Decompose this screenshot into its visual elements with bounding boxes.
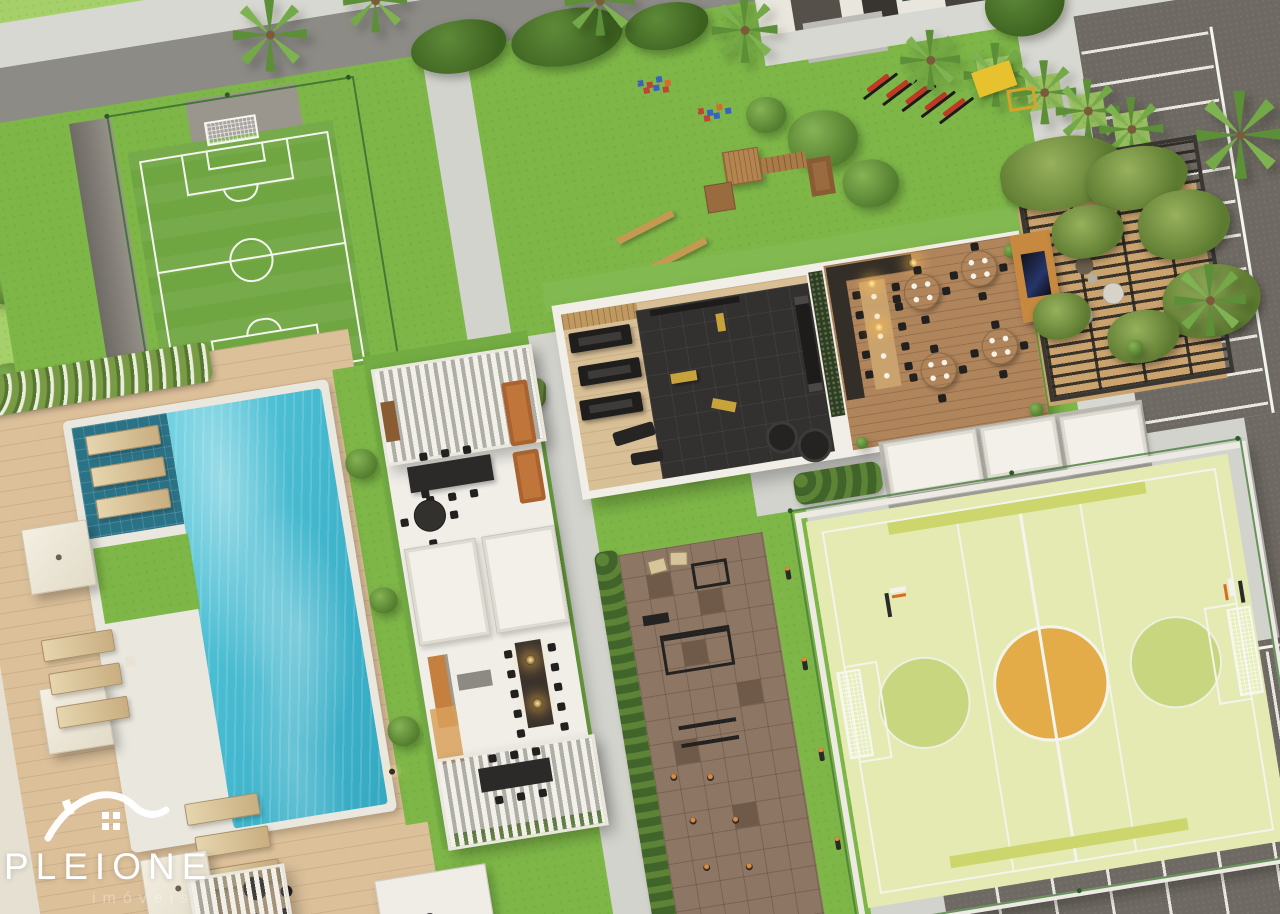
court-fence [790,437,1280,914]
pavilion-room [404,538,491,647]
info-board [669,552,687,566]
brand-name: PLEIONE [4,846,254,888]
brand-tagline: imóveis [92,890,254,908]
table-chairs [421,489,430,498]
house-roof-icon [42,784,174,846]
table-chairs [504,650,513,659]
table-chairs [913,266,922,275]
flower-patch [636,82,638,84]
grass-patch [93,533,200,624]
side-table [125,656,137,668]
pavilion-room [481,525,570,634]
aerial-render-scene: PLEIONE imóveis [0,0,1280,914]
site-plan [0,0,1280,914]
playground-platform [704,181,736,213]
paver-tile-dark [736,679,764,707]
table-chairs [991,320,1000,329]
banquet-chairs [891,282,900,291]
flower-patch [697,110,699,112]
table-chairs [547,643,556,652]
playground-roof [722,147,763,186]
table-chairs [970,242,979,251]
paver-tile-dark [732,801,760,829]
paver-tile-dark [697,587,725,615]
dining-chairs [495,795,504,804]
patio-umbrella [21,519,97,595]
dining-chairs [488,754,497,763]
table-chairs [930,344,939,353]
watermark-logo: PLEIONE imóveis [4,784,254,908]
dining-chairs [419,452,428,461]
toddler-frame [1006,86,1037,112]
